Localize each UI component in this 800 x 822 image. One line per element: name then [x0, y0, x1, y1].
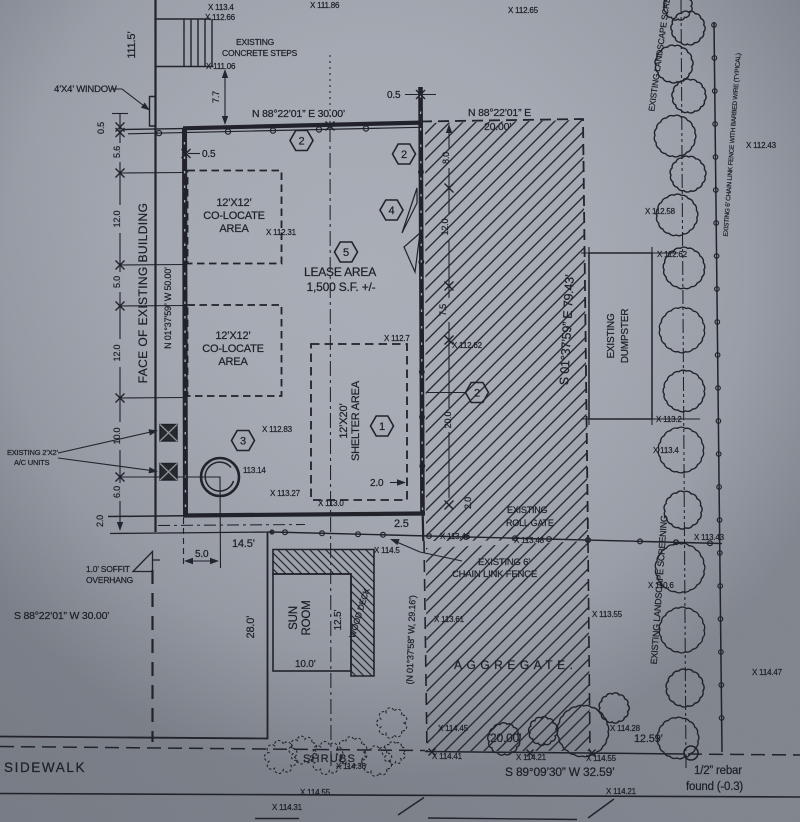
svg-text:X 113.61: X 113.61 — [434, 615, 465, 624]
svg-text:6.0: 6.0 — [112, 486, 122, 498]
svg-text:2: 2 — [298, 136, 304, 148]
svg-text:2: 2 — [401, 149, 407, 161]
svg-text:X 112.65: X 112.65 — [508, 6, 539, 15]
svg-text:1: 1 — [379, 421, 385, 433]
svg-text:CO-LOCATE: CO-LOCATE — [202, 343, 264, 355]
svg-text:X 112.62: X 112.62 — [452, 341, 483, 350]
svg-text:X 112.31: X 112.31 — [266, 228, 297, 237]
svg-text:ROOM: ROOM — [301, 601, 313, 636]
svg-text:SHELTER AREA: SHELTER AREA — [350, 380, 362, 461]
svg-text:X 114.36: X 114.36 — [336, 762, 367, 771]
svg-text:2.0: 2.0 — [95, 515, 105, 527]
svg-text:AREA: AREA — [219, 223, 249, 235]
svg-text:5.6: 5.6 — [112, 146, 122, 158]
svg-text:4’X4’ WINDOW: 4’X4’ WINDOW — [54, 84, 117, 95]
svg-text:0.5: 0.5 — [96, 122, 106, 134]
svg-text:12.5’: 12.5’ — [333, 610, 344, 631]
svg-text:X 114.21: X 114.21 — [516, 753, 547, 762]
svg-text:X 110.6: X 110.6 — [648, 581, 674, 590]
svg-text:X 111.06: X 111.06 — [206, 62, 236, 71]
svg-text:AREA: AREA — [218, 356, 248, 368]
svg-text:EXISTING 2’X2’: EXISTING 2’X2’ — [7, 448, 59, 457]
svg-text:X 114.21: X 114.21 — [606, 787, 637, 796]
svg-text:12.0: 12.0 — [112, 210, 122, 227]
svg-text:20.0: 20.0 — [443, 411, 453, 428]
svg-text:N 88°22’01” E 30.00’: N 88°22’01” E 30.00’ — [252, 108, 345, 120]
svg-text:EXISTING: EXISTING — [507, 505, 548, 515]
svg-text:10.0’: 10.0’ — [295, 659, 316, 670]
svg-text:ROLL GATE: ROLL GATE — [506, 518, 554, 528]
svg-text:DUMPSTER: DUMPSTER — [620, 309, 631, 364]
svg-text:1,500 S.F. +/-: 1,500 S.F. +/- — [307, 280, 376, 294]
svg-text:A/C UNITS: A/C UNITS — [14, 458, 49, 467]
svg-text:S 89°09’30” W 32.59’: S 89°09’30” W 32.59’ — [505, 765, 615, 779]
svg-text:X 112.83: X 112.83 — [262, 425, 293, 434]
svg-text:X 114.45: X 114.45 — [438, 724, 469, 733]
svg-text:X 113.4: X 113.4 — [208, 3, 234, 12]
svg-text:111.5’: 111.5’ — [126, 31, 138, 58]
svg-text:2.0: 2.0 — [370, 478, 384, 489]
svg-text:S 88°22’01” W 30.00’: S 88°22’01” W 30.00’ — [14, 610, 109, 622]
svg-text:3: 3 — [240, 436, 246, 448]
svg-text:0.5: 0.5 — [202, 149, 216, 160]
svg-text:7.5: 7.5 — [438, 304, 448, 316]
svg-text:X 112.66: X 112.66 — [205, 13, 236, 22]
svg-text:EXISTING: EXISTING — [606, 313, 617, 358]
svg-text:0.5: 0.5 — [387, 90, 401, 101]
svg-text:X 114.41: X 114.41 — [432, 752, 463, 761]
svg-text:12’X12’: 12’X12’ — [216, 197, 251, 209]
svg-text:X 113.0: X 113.0 — [318, 499, 344, 508]
svg-text:SIDEWALK: SIDEWALK — [4, 760, 86, 775]
svg-text:12.59’: 12.59’ — [634, 733, 663, 745]
svg-text:12’X12’: 12’X12’ — [215, 330, 250, 342]
svg-text:X 111.86: X 111.86 — [310, 1, 340, 10]
svg-text:10.0: 10.0 — [112, 427, 122, 444]
svg-text:5.0: 5.0 — [112, 276, 122, 288]
svg-text:LEASE AREA: LEASE AREA — [304, 265, 376, 279]
svg-text:113.14: 113.14 — [243, 466, 266, 475]
svg-text:X 114.5: X 114.5 — [374, 546, 400, 555]
svg-text:X 112.7: X 112.7 — [384, 334, 410, 343]
svg-text:SUN: SUN — [288, 606, 300, 630]
svg-text:2: 2 — [474, 388, 480, 400]
svg-text:N 88°22’01” E: N 88°22’01” E — [468, 107, 531, 119]
svg-text:X 113.46: X 113.46 — [440, 532, 471, 541]
svg-text:20.00’: 20.00’ — [490, 731, 522, 745]
svg-text:CO-LOCATE: CO-LOCATE — [203, 210, 265, 222]
svg-text:X 113.4: X 113.4 — [653, 446, 679, 455]
svg-text:CONCRETE STEPS: CONCRETE STEPS — [222, 48, 298, 58]
svg-text:AGGREGATE.: AGGREGATE. — [454, 658, 577, 672]
svg-text:12’X20’: 12’X20’ — [338, 403, 350, 438]
svg-text:12.0: 12.0 — [112, 344, 122, 361]
svg-text:1.0’ SOFFIT: 1.0’ SOFFIT — [86, 564, 130, 574]
svg-text:X 114.47: X 114.47 — [752, 668, 783, 677]
svg-text:found (-0.3): found (-0.3) — [686, 781, 743, 793]
svg-text:X 113.55: X 113.55 — [592, 610, 623, 619]
svg-text:5: 5 — [343, 247, 349, 259]
svg-text:8.0: 8.0 — [441, 152, 451, 164]
svg-text:1/2” rebar: 1/2” rebar — [694, 765, 742, 777]
svg-text:X 114.55: X 114.55 — [586, 754, 617, 763]
svg-text:12.0: 12.0 — [440, 218, 450, 235]
svg-text:X 112.43: X 112.43 — [746, 141, 777, 150]
svg-text:14.5’: 14.5’ — [232, 538, 255, 550]
svg-text:28.0’: 28.0’ — [245, 616, 257, 639]
svg-text:4: 4 — [388, 205, 394, 217]
svg-text:2.5: 2.5 — [394, 518, 409, 530]
svg-text:N 01°37’59” W 50.00’: N 01°37’59” W 50.00’ — [163, 267, 173, 349]
svg-text:X 113.2: X 113.2 — [656, 415, 682, 424]
svg-text:7.7: 7.7 — [211, 91, 221, 103]
svg-text:2.0: 2.0 — [463, 497, 473, 509]
svg-text:X 112.58: X 112.58 — [645, 207, 676, 216]
svg-text:5.0: 5.0 — [195, 549, 209, 560]
svg-text:FACE OF EXISTING BUILDING: FACE OF EXISTING BUILDING — [136, 203, 150, 384]
svg-text:OVERHANG: OVERHANG — [86, 575, 133, 585]
svg-text:X 114.28: X 114.28 — [610, 724, 641, 733]
svg-text:X 114.31: X 114.31 — [272, 803, 303, 812]
svg-text:EXISTING: EXISTING — [236, 37, 274, 47]
svg-text:X 113.27: X 113.27 — [270, 489, 301, 498]
